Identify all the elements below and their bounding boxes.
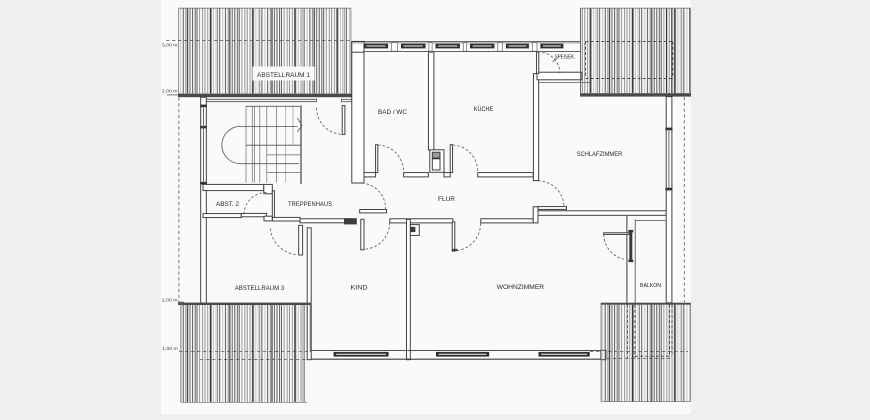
svg-text:ABSTELLRAUM 3: ABSTELLRAUM 3 xyxy=(235,286,285,292)
svg-text:TREPPENHAUS: TREPPENHAUS xyxy=(288,202,332,208)
svg-text:3,00 m: 3,00 m xyxy=(162,43,178,49)
svg-text:KÜCHE: KÜCHE xyxy=(474,106,494,113)
svg-text:2,00 m: 2,00 m xyxy=(162,297,178,303)
svg-text:SCHLAFZIMMER: SCHLAFZIMMER xyxy=(577,152,623,158)
svg-text:BAD / WC: BAD / WC xyxy=(378,110,408,116)
svg-text:ABST. 2: ABST. 2 xyxy=(216,202,240,208)
svg-text:BALKON: BALKON xyxy=(640,283,661,289)
svg-text:ABSTELLRAUM 1: ABSTELLRAUM 1 xyxy=(257,73,311,79)
svg-text:FLUR: FLUR xyxy=(438,197,456,203)
svg-text:1,00 m: 1,00 m xyxy=(162,346,178,352)
svg-text:SPEISEK.: SPEISEK. xyxy=(555,54,576,60)
svg-text:WOHNZIMMER: WOHNZIMMER xyxy=(497,285,545,291)
svg-text:2,00 m: 2,00 m xyxy=(162,89,178,95)
svg-text:KIND: KIND xyxy=(351,286,369,292)
